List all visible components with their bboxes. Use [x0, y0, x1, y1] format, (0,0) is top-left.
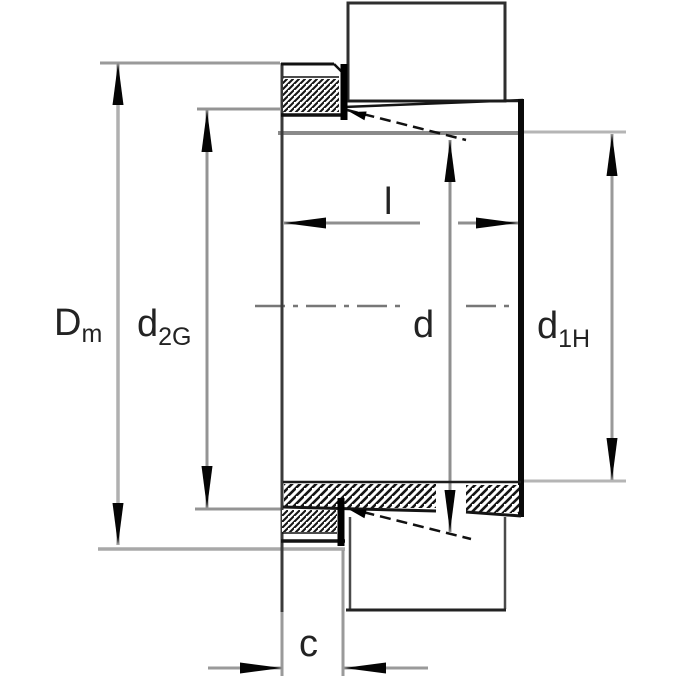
- dm-arrow-bottom: [113, 503, 124, 545]
- l-arrow-left: [284, 218, 326, 229]
- d-arrow-top: [445, 140, 456, 182]
- label-d: d: [413, 304, 434, 346]
- d1h-arrow-bottom: [607, 438, 618, 480]
- label-d2g: d2G: [137, 303, 192, 351]
- locknut-section-top: [281, 64, 347, 120]
- d2g-arrow-bottom: [202, 466, 213, 508]
- dimension-arrowheads: [113, 63, 618, 674]
- bearing-ring-top: [348, 3, 505, 101]
- dimension-lines: [98, 63, 612, 676]
- d-arrow-bottom: [445, 490, 456, 532]
- sleeve-section-hatch-left: [284, 484, 436, 508]
- locknut-hatch-bottom: [282, 510, 337, 532]
- sleeve-section-hatch-right: [466, 485, 519, 513]
- label-c: c: [299, 623, 318, 665]
- technical-drawing-canvas: Dm d2G l d d1H c: [0, 0, 680, 680]
- label-l: l: [384, 181, 392, 223]
- l-arrow-right: [476, 218, 518, 229]
- taper-leader-arrow-top: [349, 108, 367, 121]
- dm-arrow-top: [113, 63, 124, 105]
- d1h-arrow-top: [607, 134, 618, 176]
- locknut-hatch-top: [283, 79, 339, 112]
- d2g-arrow-top: [202, 110, 213, 152]
- label-d1h: d1H: [537, 305, 590, 353]
- adapter-sleeve-drawing: Dm d2G l d d1H c: [0, 0, 680, 680]
- c-arrow-right: [344, 663, 386, 674]
- bearing-ring-bottom: [346, 517, 506, 610]
- c-arrow-left: [240, 663, 282, 674]
- dimension-labels: Dm d2G l d d1H c: [54, 181, 590, 665]
- label-dm: Dm: [54, 302, 102, 348]
